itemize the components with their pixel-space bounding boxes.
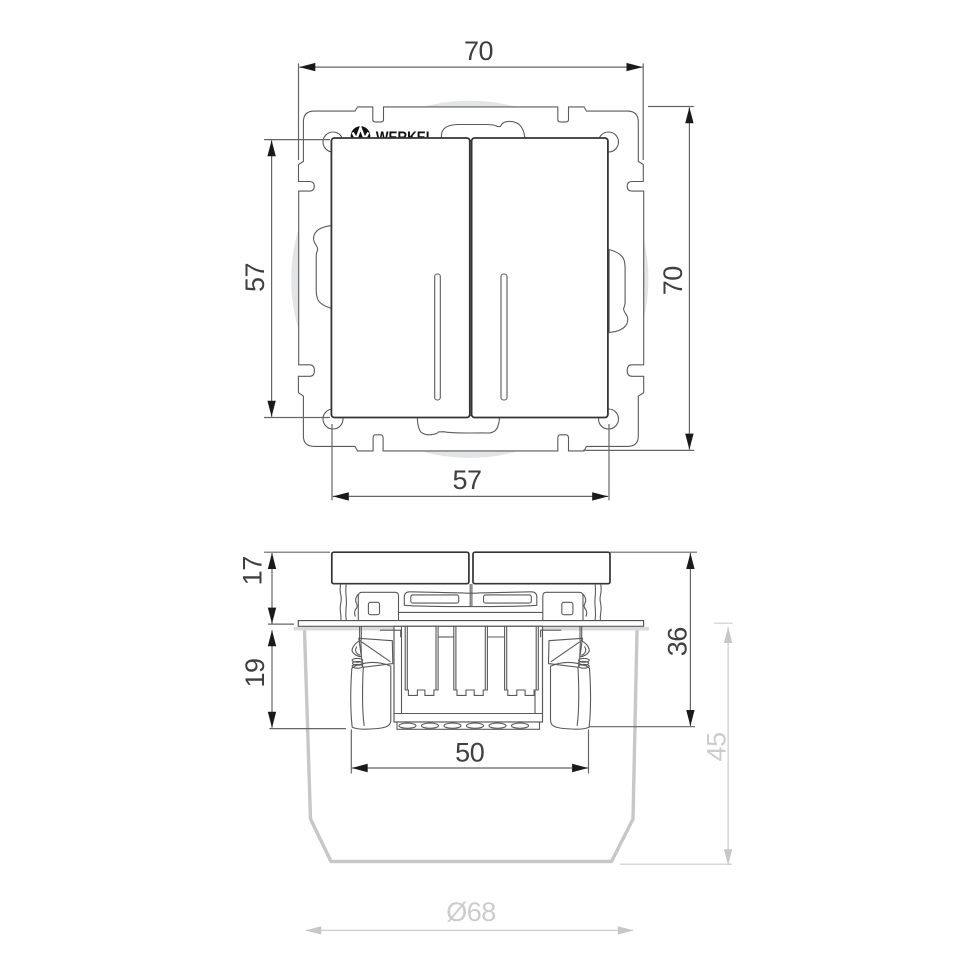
svg-text:70: 70 (464, 36, 493, 66)
svg-text:70: 70 (658, 266, 688, 295)
svg-text:19: 19 (240, 658, 270, 687)
svg-text:17: 17 (237, 556, 267, 585)
svg-text:50: 50 (455, 738, 484, 768)
svg-text:57: 57 (240, 263, 270, 292)
svg-text:Ø68: Ø68 (446, 897, 496, 927)
svg-text:45: 45 (702, 732, 732, 761)
svg-text:36: 36 (662, 627, 692, 656)
svg-text:57: 57 (452, 465, 481, 495)
